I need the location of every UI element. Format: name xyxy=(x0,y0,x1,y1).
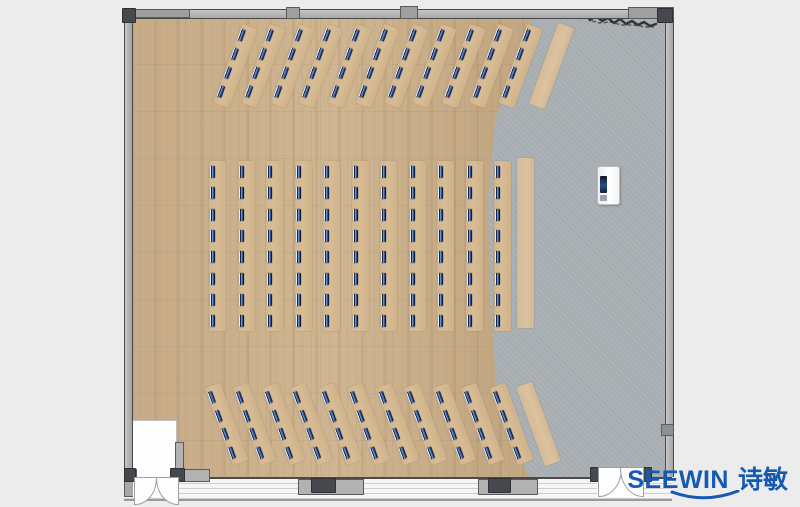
desk-row xyxy=(494,161,511,331)
monitor-icon xyxy=(381,166,386,178)
wall-west xyxy=(124,9,133,497)
monitor-icon xyxy=(210,294,215,306)
monitor-icon xyxy=(353,273,358,285)
monitor-icon xyxy=(465,29,474,42)
monitor-icon xyxy=(344,47,353,60)
monitor-icon xyxy=(237,29,246,42)
monitor-icon xyxy=(210,166,215,178)
monitor-icon xyxy=(341,446,350,459)
monitor-icon xyxy=(315,47,324,60)
monitor-icon xyxy=(349,391,358,404)
monitor-icon xyxy=(413,409,422,422)
monitor-icon xyxy=(210,273,215,285)
monitor-icon xyxy=(455,446,464,459)
monitor-icon xyxy=(410,209,415,221)
monitor-icon xyxy=(505,428,514,441)
monitor-icon xyxy=(299,409,308,422)
monitor-icon xyxy=(381,251,386,263)
monitor-icon xyxy=(381,294,386,306)
monitor-icon xyxy=(384,409,393,422)
monitor-icon xyxy=(248,428,257,441)
desk-row xyxy=(209,161,226,331)
monitor-icon xyxy=(239,251,244,263)
monitor-icon xyxy=(296,187,301,199)
monitor-icon xyxy=(495,187,500,199)
monitor-icon xyxy=(470,409,479,422)
monitor-icon xyxy=(492,391,501,404)
monitor-icon xyxy=(358,85,367,98)
monitor-icon xyxy=(277,428,286,441)
monitor-icon xyxy=(495,294,500,306)
monitor-icon xyxy=(296,209,301,221)
monitor-icon xyxy=(227,446,236,459)
monitor-icon xyxy=(322,29,331,42)
monitor-icon xyxy=(476,428,485,441)
wall-north xyxy=(123,9,672,19)
side-table xyxy=(517,158,534,328)
monitor-icon xyxy=(381,209,386,221)
desk-rows-layer xyxy=(0,0,800,507)
desk-row xyxy=(323,161,340,331)
monitor-icon xyxy=(207,391,216,404)
monitor-icon xyxy=(258,47,267,60)
podium-screen-icon xyxy=(600,176,607,193)
podium-panel xyxy=(600,195,607,201)
wall-segment xyxy=(182,469,210,482)
monitor-icon xyxy=(463,391,472,404)
monitor-icon xyxy=(410,187,415,199)
monitor-icon xyxy=(296,251,301,263)
monitor-icon xyxy=(419,428,428,441)
monitor-icon xyxy=(467,251,472,263)
monitor-icon xyxy=(458,47,467,60)
monitor-icon xyxy=(498,409,507,422)
wall-column-tab xyxy=(400,6,418,19)
monitor-icon xyxy=(294,29,303,42)
monitor-icon xyxy=(267,166,272,178)
desk-row xyxy=(238,161,255,331)
monitor-icon xyxy=(410,273,415,285)
monitor-icon xyxy=(296,273,301,285)
monitor-icon xyxy=(223,66,232,79)
monitor-icon xyxy=(301,85,310,98)
monitor-icon xyxy=(378,391,387,404)
monitor-icon xyxy=(296,315,301,327)
monitor-icon xyxy=(381,315,386,327)
monitor-icon xyxy=(438,209,443,221)
monitor-icon xyxy=(401,47,410,60)
wall-post xyxy=(657,8,673,23)
monitor-icon xyxy=(239,294,244,306)
monitor-icon xyxy=(495,315,500,327)
monitor-icon xyxy=(495,209,500,221)
monitor-icon xyxy=(284,446,293,459)
monitor-icon xyxy=(495,273,500,285)
monitor-icon xyxy=(410,166,415,178)
desk-row xyxy=(409,161,426,331)
monitor-icon xyxy=(410,230,415,242)
monitor-icon xyxy=(239,315,244,327)
monitor-icon xyxy=(501,85,510,98)
monitor-icon xyxy=(353,251,358,263)
podium xyxy=(597,166,620,205)
desk-row xyxy=(295,161,312,331)
monitor-icon xyxy=(351,29,360,42)
monitor-icon xyxy=(210,209,215,221)
monitor-icon xyxy=(321,391,330,404)
monitor-icon xyxy=(324,166,329,178)
wall-post xyxy=(661,424,674,436)
monitor-icon xyxy=(438,251,443,263)
monitor-icon xyxy=(267,273,272,285)
monitor-icon xyxy=(296,230,301,242)
monitor-icon xyxy=(495,251,500,263)
monitor-icon xyxy=(324,187,329,199)
monitor-icon xyxy=(394,66,403,79)
monitor-icon xyxy=(472,85,481,98)
monitor-icon xyxy=(429,47,438,60)
monitor-icon xyxy=(265,29,274,42)
monitor-icon xyxy=(365,66,374,79)
monitor-icon xyxy=(362,428,371,441)
monitor-icon xyxy=(239,209,244,221)
monitor-icon xyxy=(292,391,301,404)
monitor-icon xyxy=(438,166,443,178)
monitor-icon xyxy=(467,273,472,285)
monitor-icon xyxy=(435,391,444,404)
monitor-icon xyxy=(235,391,244,404)
desk-row xyxy=(380,161,397,331)
logo-cjk-text: 诗敏 xyxy=(738,468,788,493)
monitor-icon xyxy=(324,315,329,327)
logo-swoosh-icon xyxy=(669,490,741,502)
wall-post xyxy=(488,478,511,493)
monitor-icon xyxy=(230,47,239,60)
monitor-icon xyxy=(512,446,521,459)
monitor-icon xyxy=(239,166,244,178)
desk-row xyxy=(266,161,283,331)
monitor-icon xyxy=(267,294,272,306)
monitor-icon xyxy=(324,230,329,242)
monitor-icon xyxy=(438,187,443,199)
monitor-icon xyxy=(270,409,279,422)
monitor-icon xyxy=(415,85,424,98)
desk-row xyxy=(466,161,483,331)
floorplan-canvas: SEEWIN 诗敏 xyxy=(0,0,800,507)
monitor-icon xyxy=(467,166,472,178)
logo-latin-wrap: SEEWIN xyxy=(627,468,729,493)
monitor-icon xyxy=(251,66,260,79)
monitor-icon xyxy=(406,391,415,404)
monitor-icon xyxy=(312,446,321,459)
monitor-icon xyxy=(239,230,244,242)
monitor-icon xyxy=(479,66,488,79)
monitor-icon xyxy=(334,428,343,441)
monitor-icon xyxy=(441,409,450,422)
monitor-icon xyxy=(210,315,215,327)
monitor-icon xyxy=(327,409,336,422)
monitor-icon xyxy=(353,315,358,327)
monitor-icon xyxy=(381,230,386,242)
monitor-icon xyxy=(467,230,472,242)
wall-column-tab xyxy=(286,7,300,19)
monitor-icon xyxy=(381,273,386,285)
monitor-icon xyxy=(448,428,457,441)
monitor-icon xyxy=(210,187,215,199)
monitor-icon xyxy=(522,29,531,42)
monitor-icon xyxy=(467,209,472,221)
monitor-icon xyxy=(381,187,386,199)
monitor-icon xyxy=(369,446,378,459)
monitor-icon xyxy=(422,66,431,79)
monitor-icon xyxy=(444,85,453,98)
monitor-icon xyxy=(353,187,358,199)
monitor-icon xyxy=(467,294,472,306)
monitor-icon xyxy=(239,187,244,199)
monitor-icon xyxy=(324,273,329,285)
monitor-icon xyxy=(410,251,415,263)
monitor-icon xyxy=(267,187,272,199)
wall-east xyxy=(665,9,674,477)
monitor-icon xyxy=(398,446,407,459)
monitor-icon xyxy=(515,47,524,60)
monitor-icon xyxy=(244,85,253,98)
monitor-icon xyxy=(483,446,492,459)
wall-post xyxy=(311,478,336,493)
monitor-icon xyxy=(337,66,346,79)
monitor-icon xyxy=(267,251,272,263)
monitor-icon xyxy=(353,230,358,242)
monitor-icon xyxy=(287,47,296,60)
desk-row xyxy=(352,161,369,331)
monitor-icon xyxy=(305,428,314,441)
monitor-icon xyxy=(213,409,222,422)
monitor-icon xyxy=(296,166,301,178)
monitor-icon xyxy=(426,446,435,459)
monitor-icon xyxy=(451,66,460,79)
monitor-icon xyxy=(239,273,244,285)
monitor-icon xyxy=(387,85,396,98)
monitor-icon xyxy=(273,85,282,98)
monitor-icon xyxy=(438,273,443,285)
monitor-icon xyxy=(436,29,445,42)
monitor-icon xyxy=(264,391,273,404)
monitor-icon xyxy=(308,66,317,79)
seewin-logo: SEEWIN 诗敏 xyxy=(627,468,788,493)
monitor-icon xyxy=(438,230,443,242)
monitor-icon xyxy=(391,428,400,441)
monitor-icon xyxy=(324,209,329,221)
monitor-icon xyxy=(280,66,289,79)
monitor-icon xyxy=(438,315,443,327)
monitor-icon xyxy=(220,428,229,441)
monitor-icon xyxy=(267,209,272,221)
monitor-icon xyxy=(324,294,329,306)
monitor-icon xyxy=(356,409,365,422)
monitor-icon xyxy=(255,446,264,459)
monitor-icon xyxy=(493,29,502,42)
monitor-icon xyxy=(410,294,415,306)
wall-post xyxy=(122,8,136,23)
monitor-icon xyxy=(353,166,358,178)
monitor-icon xyxy=(495,230,500,242)
monitor-icon xyxy=(408,29,417,42)
monitor-icon xyxy=(495,166,500,178)
monitor-icon xyxy=(508,66,517,79)
monitor-icon xyxy=(210,230,215,242)
monitor-icon xyxy=(372,47,381,60)
monitor-icon xyxy=(353,294,358,306)
monitor-icon xyxy=(438,294,443,306)
monitor-icon xyxy=(242,409,251,422)
monitor-icon xyxy=(486,47,495,60)
monitor-icon xyxy=(216,85,225,98)
desk-row xyxy=(437,161,454,331)
monitor-icon xyxy=(267,315,272,327)
monitor-icon xyxy=(267,230,272,242)
monitor-icon xyxy=(324,251,329,263)
monitor-icon xyxy=(353,209,358,221)
monitor-icon xyxy=(467,315,472,327)
monitor-icon xyxy=(210,251,215,263)
monitor-icon xyxy=(296,294,301,306)
monitor-icon xyxy=(379,29,388,42)
monitor-icon xyxy=(467,187,472,199)
monitor-icon xyxy=(410,315,415,327)
monitor-icon xyxy=(330,85,339,98)
